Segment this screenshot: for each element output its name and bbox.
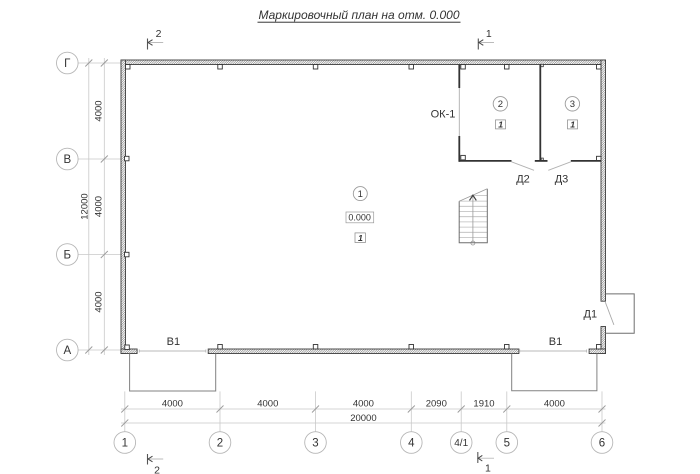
svg-text:4000: 4000 (544, 398, 565, 409)
svg-text:12000: 12000 (80, 193, 91, 219)
svg-text:А: А (63, 345, 71, 357)
svg-text:4000: 4000 (353, 398, 374, 409)
svg-text:2: 2 (498, 99, 503, 110)
svg-text:4000: 4000 (94, 196, 105, 217)
svg-text:1: 1 (570, 119, 575, 129)
svg-text:5: 5 (504, 438, 510, 450)
svg-text:0.000: 0.000 (348, 213, 371, 223)
svg-text:4000: 4000 (94, 291, 105, 312)
svg-text:В: В (63, 154, 71, 166)
svg-text:Д2: Д2 (516, 174, 530, 186)
svg-text:1: 1 (485, 463, 491, 474)
svg-text:4000: 4000 (257, 398, 278, 409)
svg-text:В1: В1 (167, 336, 180, 348)
svg-text:4: 4 (408, 438, 415, 450)
svg-text:4000: 4000 (94, 100, 105, 121)
svg-text:3: 3 (570, 99, 575, 110)
svg-text:1: 1 (358, 189, 363, 200)
svg-text:4000: 4000 (162, 398, 183, 409)
svg-text:6: 6 (599, 438, 605, 450)
svg-text:3: 3 (312, 438, 318, 450)
svg-text:1: 1 (122, 438, 128, 450)
svg-text:1: 1 (358, 233, 363, 243)
svg-text:Маркировочный план на отм. 0.0: Маркировочный план на отм. 0.000 (258, 8, 459, 22)
svg-text:20000: 20000 (350, 413, 376, 424)
svg-text:Б: Б (64, 250, 72, 262)
svg-text:1910: 1910 (473, 398, 494, 409)
svg-text:ОК-1: ОК-1 (431, 108, 456, 120)
svg-text:В1: В1 (549, 336, 562, 348)
svg-text:Г: Г (64, 58, 71, 70)
svg-text:2: 2 (156, 28, 162, 40)
svg-text:Д1: Д1 (584, 308, 598, 320)
svg-text:2: 2 (154, 465, 160, 474)
svg-text:Д3: Д3 (555, 174, 569, 186)
svg-text:2090: 2090 (426, 398, 447, 409)
svg-text:2: 2 (217, 438, 223, 450)
svg-text:1: 1 (486, 28, 492, 40)
svg-text:4/1: 4/1 (454, 438, 468, 449)
svg-text:1: 1 (498, 119, 503, 129)
